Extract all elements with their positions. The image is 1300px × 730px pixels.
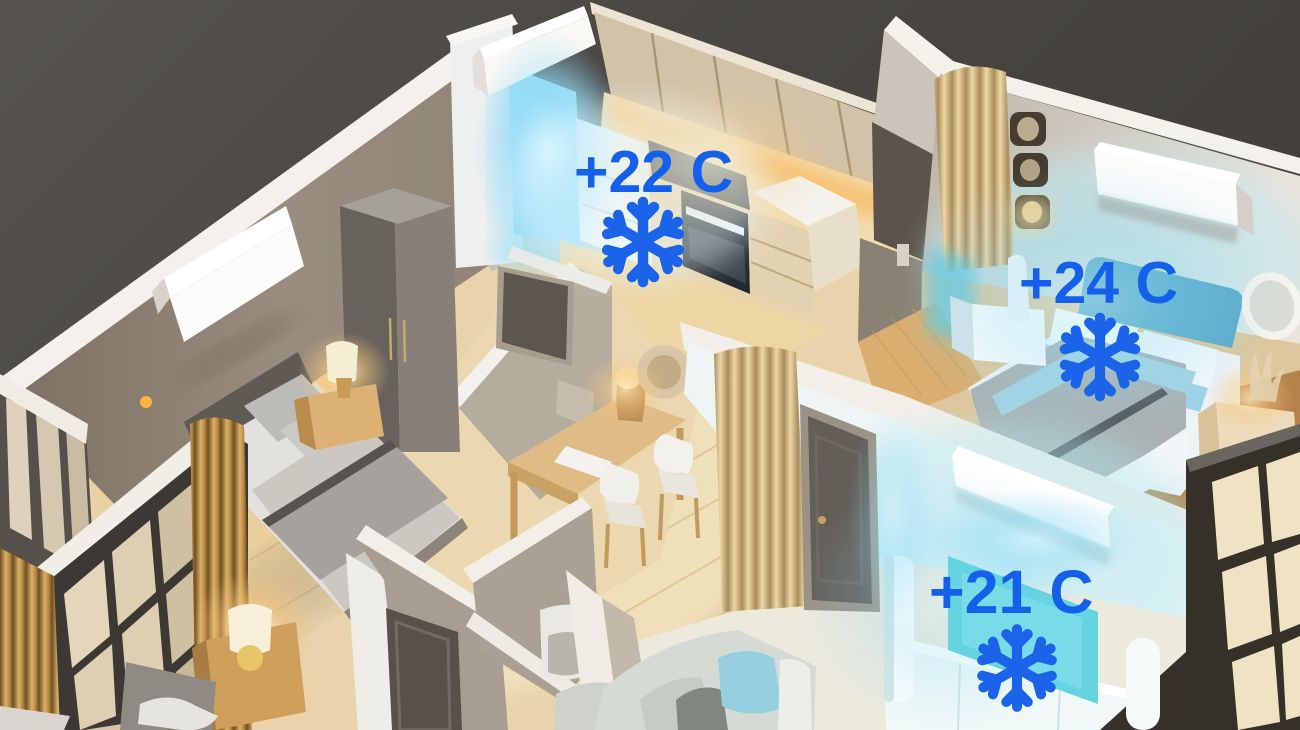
- svg-text:+22 C: +22 C: [574, 139, 733, 205]
- svg-text:+24 C: +24 C: [1019, 250, 1178, 316]
- svg-text:+21 C: +21 C: [929, 558, 1093, 626]
